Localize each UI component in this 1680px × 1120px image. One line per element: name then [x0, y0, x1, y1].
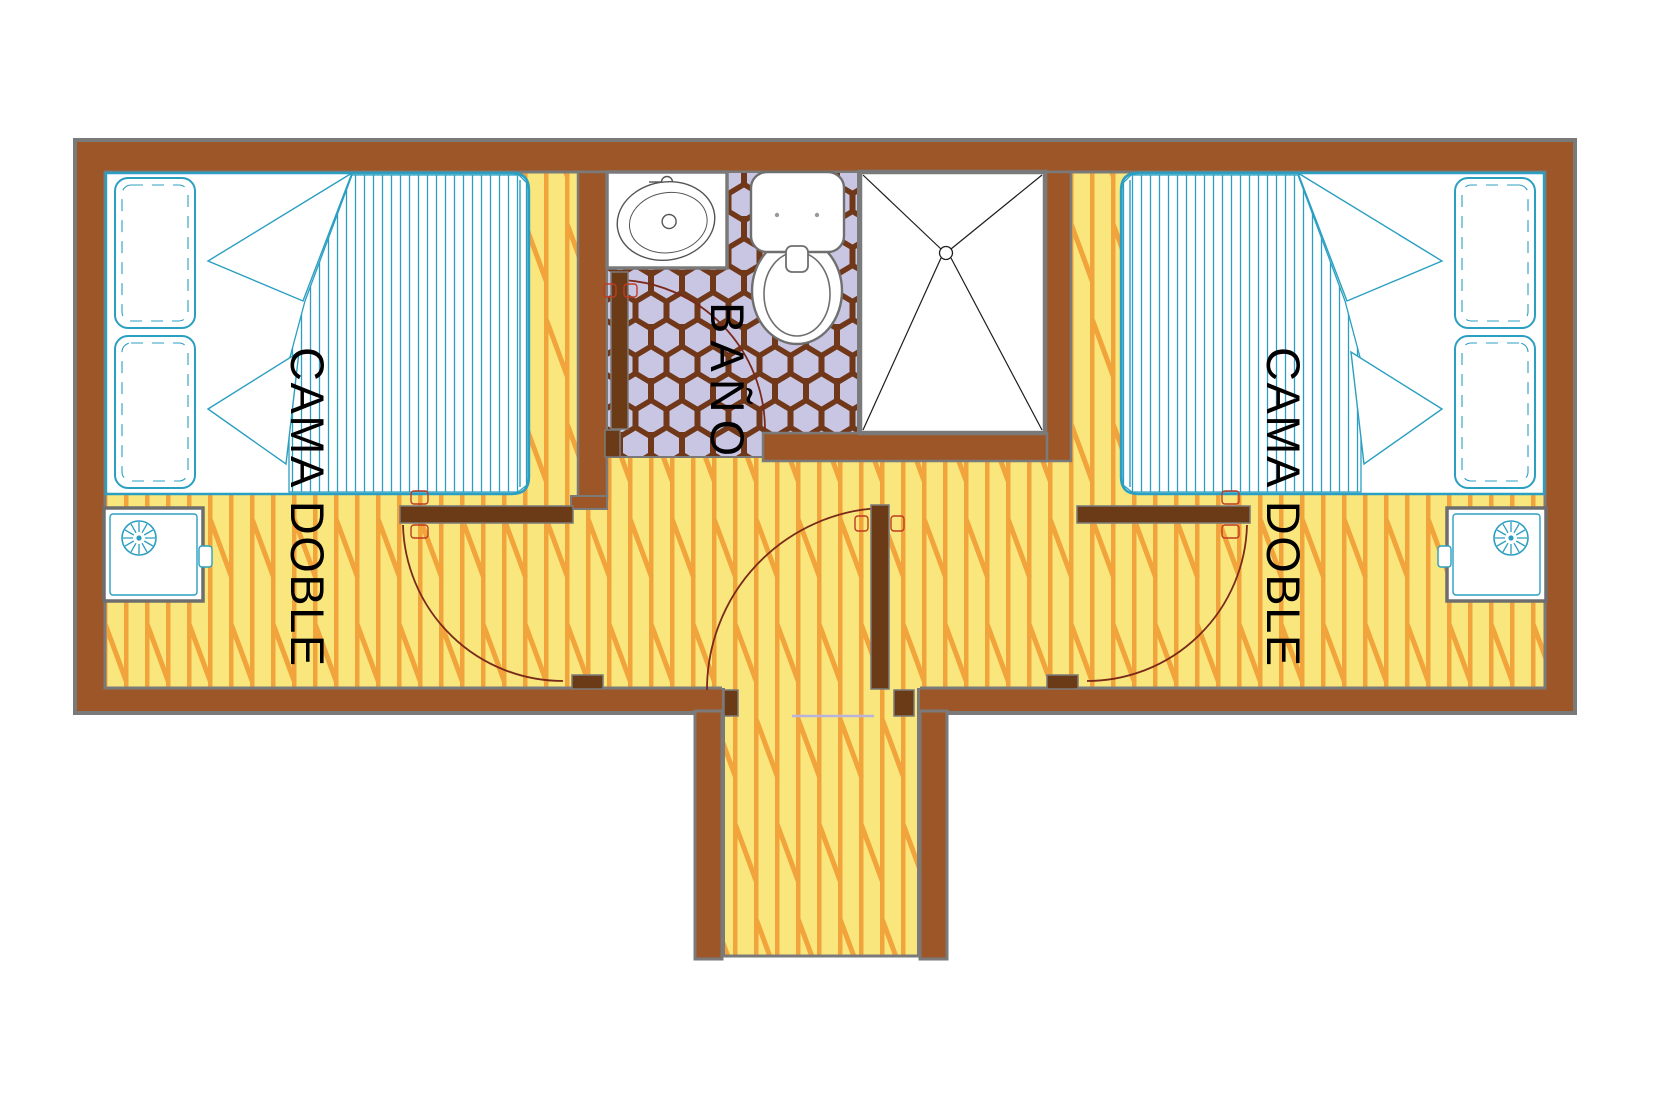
lamp-icon: [122, 521, 156, 555]
entry-wall-right: [920, 711, 947, 959]
wall-return-stub-left: [571, 496, 607, 509]
door-jamb: [724, 690, 738, 716]
toilet-icon: [751, 172, 844, 344]
pillow-icon: [115, 336, 195, 488]
floor-plan-drawing: CAMA DOBLE BAÑO CAMA DOBLE: [0, 0, 1680, 1120]
entry-wall-left: [695, 711, 722, 959]
door-leaf: [871, 505, 889, 689]
door-jamb: [572, 675, 603, 689]
door-leaf: [611, 272, 628, 429]
floor-plan-canvas: CAMA DOBLE BAÑO CAMA DOBLE: [0, 0, 1680, 1120]
wall-bathroom-corridor: [763, 433, 1047, 461]
bathroom-label: BAÑO: [701, 302, 754, 463]
wood-floor-entry: [722, 686, 920, 957]
wall-bedroom-bathroom: [578, 172, 607, 498]
sink-counter: [607, 172, 727, 268]
shower-icon: [860, 172, 1045, 433]
left-bedroom-label: CAMA DOBLE: [281, 347, 334, 668]
door-jamb: [894, 690, 914, 716]
pillow-icon: [115, 178, 195, 328]
right-bedroom-label: CAMA DOBLE: [1257, 347, 1310, 668]
nightstand-icon: [104, 508, 212, 601]
door-leaf: [400, 506, 573, 523]
shower-drain-icon: [940, 247, 953, 260]
door-jamb: [605, 430, 620, 457]
